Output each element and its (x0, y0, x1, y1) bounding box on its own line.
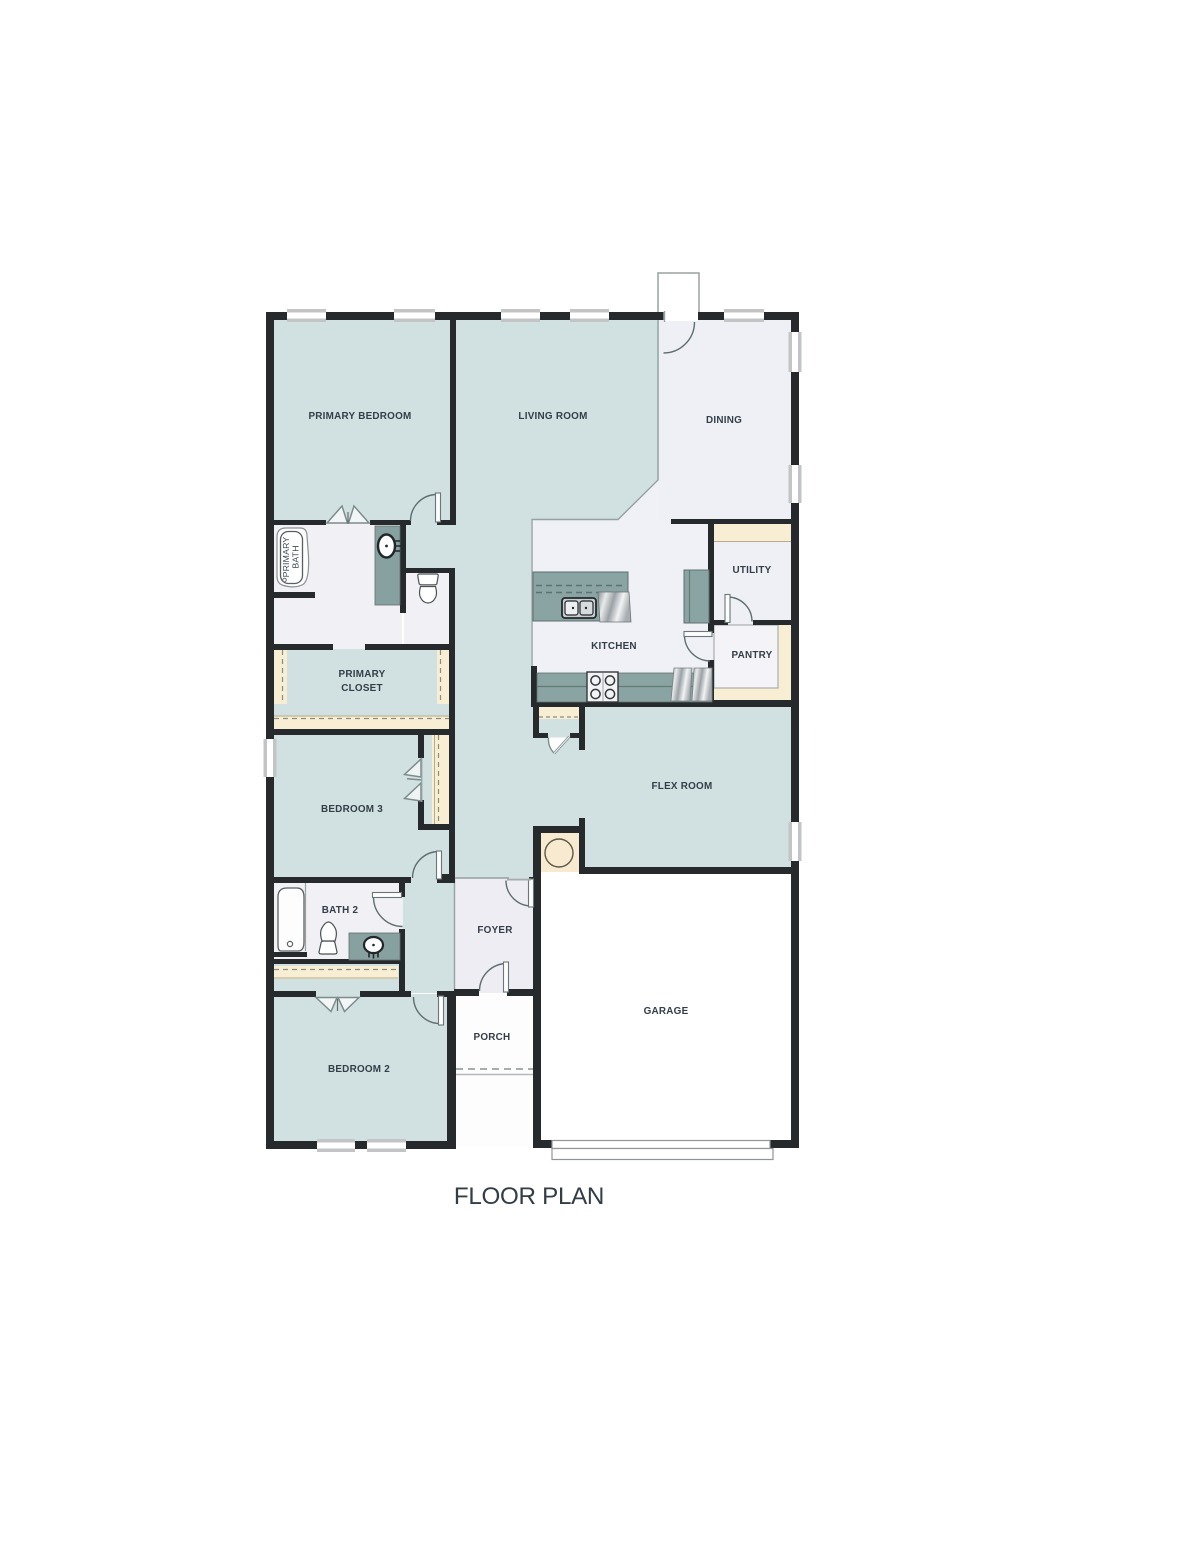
svg-text:DINING: DINING (706, 415, 742, 426)
svg-text:PRIMARY: PRIMARY (281, 537, 291, 578)
svg-text:KITCHEN: KITCHEN (591, 641, 637, 652)
svg-text:UTILITY: UTILITY (732, 565, 771, 576)
svg-text:BATH 2: BATH 2 (322, 905, 359, 916)
svg-text:PRIMARY BEDROOM: PRIMARY BEDROOM (308, 411, 411, 422)
svg-text:PANTRY: PANTRY (732, 650, 773, 661)
svg-text:LIVING ROOM: LIVING ROOM (518, 411, 587, 422)
svg-text:BATH: BATH (290, 545, 300, 568)
svg-text:PORCH: PORCH (474, 1032, 511, 1043)
svg-text:GARAGE: GARAGE (644, 1006, 689, 1017)
svg-text:FLOOR PLAN: FLOOR PLAN (454, 1183, 604, 1210)
svg-text:PRIMARY: PRIMARY (339, 669, 386, 680)
svg-text:FLEX ROOM: FLEX ROOM (652, 781, 713, 792)
svg-text:FOYER: FOYER (477, 925, 512, 936)
svg-text:BEDROOM 2: BEDROOM 2 (328, 1064, 390, 1075)
svg-text:BEDROOM 3: BEDROOM 3 (321, 804, 383, 815)
svg-text:CLOSET: CLOSET (341, 683, 383, 694)
